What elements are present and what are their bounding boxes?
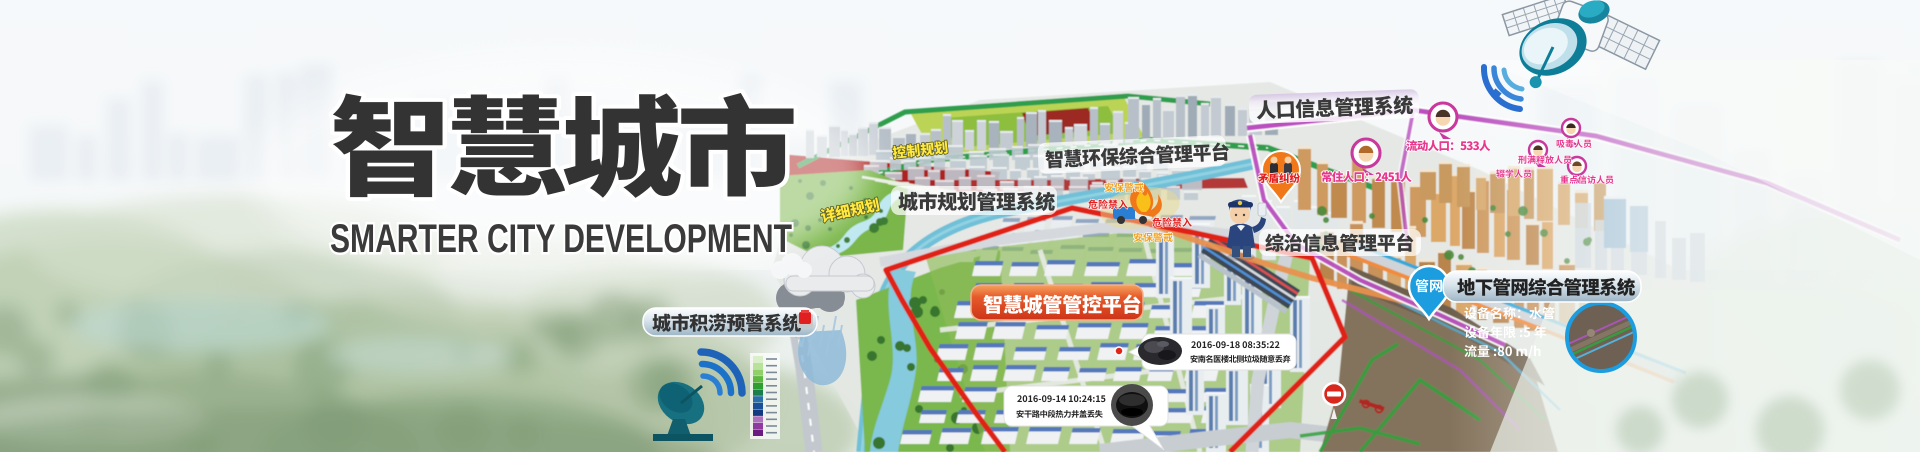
svg-text:SMARTER CITY DEVELOPMENT: SMARTER CITY DEVELOPMENT	[330, 217, 792, 261]
